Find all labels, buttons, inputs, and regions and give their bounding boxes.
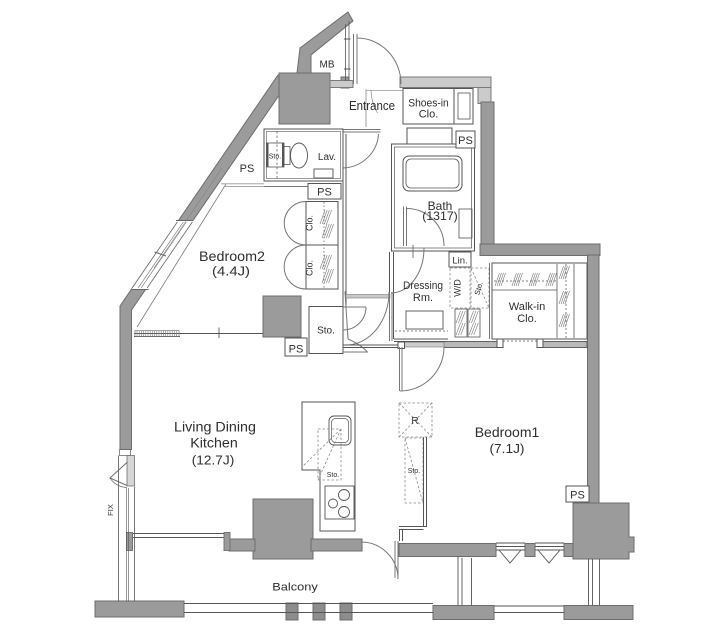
svg-text:(1317): (1317) <box>422 209 458 223</box>
svg-text:R: R <box>411 416 418 427</box>
svg-text:(4.4J): (4.4J) <box>212 264 250 279</box>
svg-text:Clo.: Clo. <box>517 313 537 325</box>
svg-text:Sto.: Sto. <box>317 326 335 337</box>
svg-text:Clo.: Clo. <box>305 260 315 276</box>
svg-text:Rm.: Rm. <box>413 292 433 304</box>
svg-text:W/D: W/D <box>453 279 463 297</box>
svg-text:PS: PS <box>570 490 585 502</box>
svg-text:PS: PS <box>289 344 304 356</box>
svg-text:Sto.: Sto. <box>327 472 340 479</box>
svg-text:Kitchen: Kitchen <box>190 435 238 451</box>
svg-text:PS: PS <box>240 163 255 175</box>
svg-text:Sto.: Sto. <box>408 468 421 475</box>
svg-text:Living Dining: Living Dining <box>174 419 256 435</box>
svg-text:PS: PS <box>317 187 332 199</box>
svg-text:Bedroom2: Bedroom2 <box>199 248 265 264</box>
svg-text:FIX: FIX <box>106 504 115 516</box>
svg-text:(12.7J): (12.7J) <box>192 453 235 468</box>
svg-text:(7.1J): (7.1J) <box>490 441 525 456</box>
svg-text:Walk-in: Walk-in <box>509 301 546 313</box>
svg-text:Entrance: Entrance <box>349 98 395 113</box>
svg-text:Dressing: Dressing <box>403 280 443 292</box>
svg-text:Sto.: Sto. <box>269 154 282 161</box>
svg-text:MB: MB <box>320 60 335 71</box>
svg-text:Clo.: Clo. <box>419 109 439 121</box>
svg-text:Lav.: Lav. <box>318 152 336 163</box>
svg-text:Balcony: Balcony <box>272 582 318 594</box>
svg-text:Lin.: Lin. <box>452 256 467 267</box>
svg-text:Bedroom1: Bedroom1 <box>475 424 540 440</box>
svg-text:Clo.: Clo. <box>305 215 315 231</box>
svg-text:PS: PS <box>458 135 473 147</box>
